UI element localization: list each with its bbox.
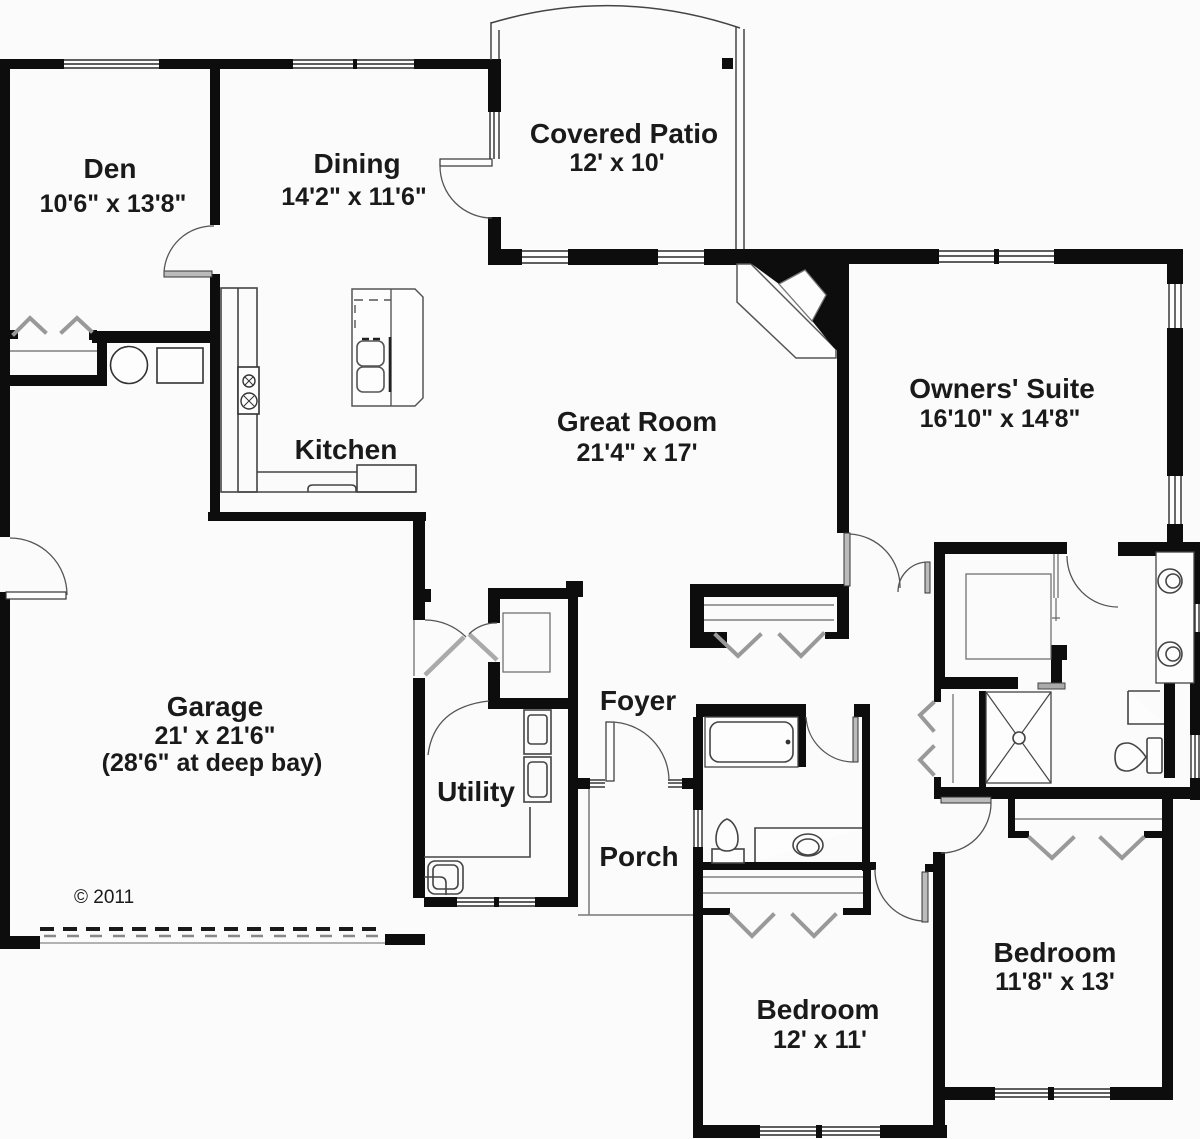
svg-text:Bedroom: Bedroom <box>757 994 880 1025</box>
svg-text:Utility: Utility <box>437 776 515 807</box>
svg-text:© 2011: © 2011 <box>74 887 134 908</box>
svg-text:Porch: Porch <box>599 841 678 872</box>
svg-text:16'10" x 14'8": 16'10" x 14'8" <box>920 405 1081 433</box>
svg-text:Bedroom: Bedroom <box>994 937 1117 968</box>
svg-text:21' x 21'6": 21' x 21'6" <box>154 722 275 750</box>
svg-text:12' x 10': 12' x 10' <box>569 149 664 177</box>
svg-text:Garage: Garage <box>167 691 264 722</box>
svg-text:Great Room: Great Room <box>557 406 717 437</box>
svg-text:10'6" x 13'8": 10'6" x 13'8" <box>40 190 187 218</box>
svg-text:11'8" x 13': 11'8" x 13' <box>995 968 1115 996</box>
svg-text:12' x 11': 12' x 11' <box>773 1026 867 1054</box>
svg-text:14'2" x 11'6": 14'2" x 11'6" <box>281 183 426 211</box>
svg-text:Kitchen: Kitchen <box>295 434 398 465</box>
svg-text:Dining: Dining <box>313 148 400 179</box>
svg-text:Owners' Suite: Owners' Suite <box>909 373 1095 404</box>
svg-text:Foyer: Foyer <box>600 685 676 716</box>
svg-text:21'4" x 17': 21'4" x 17' <box>576 439 697 467</box>
svg-text:Den: Den <box>84 153 137 184</box>
svg-text:Covered Patio: Covered Patio <box>530 118 718 149</box>
svg-text:(28'6" at deep bay): (28'6" at deep bay) <box>102 749 323 777</box>
